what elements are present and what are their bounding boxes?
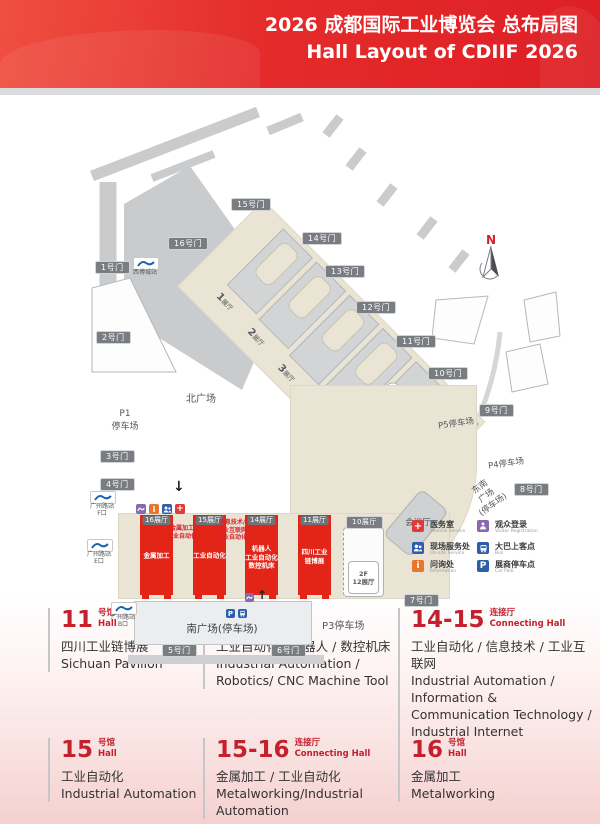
hall-10-tag: 10展厅 [346,516,383,529]
gate-4: 4号门 [100,478,135,491]
gate-3: 3号门 [100,450,135,463]
gate-11: 11号门 [396,335,436,348]
gate-6: 6号门 [271,644,306,657]
gate-14: 14号门 [302,232,342,245]
onsite-service-icon [162,504,172,514]
visitor-registration-icon [477,520,489,532]
gate-13: 13号门 [325,265,365,278]
connecting-hall-16-15: 金属加工 工业自动化 [167,525,197,540]
gate-16: 16号门 [168,237,208,250]
hall-14-tag: 14展厅 [247,516,276,525]
gate-9: 9号门 [479,404,514,417]
bus-icon [477,542,489,554]
gate-5: 5号门 [162,644,197,657]
hall-11-tag: 11展厅 [300,516,329,525]
metro-station-xibocheng: 西博城站 [131,269,159,276]
venue-map: 1展厅 2展厅 3展厅 4展厅 5展厅 6展厅 2F 7展厅 2F 8展厅 会议… [0,95,600,595]
compass-icon [478,245,504,281]
metro-station-exit-e: 广州路站 E口 [85,551,113,565]
gate-7: 7号门 [404,594,439,607]
gate-1: 1号门 [95,261,130,274]
p1-parking-label: P1 停车场 [103,408,147,434]
header-divider [0,88,600,95]
hall-11: 11展厅 四川工业 链博展 [298,515,331,595]
gate-15: 15号门 [231,198,271,211]
information-icon: i [412,560,424,572]
info-block-connecting-14-15: 14-15连接厅 Connecting Hall 工业自动化 / 信息技术 / … [398,608,593,740]
parking-icon: P [477,560,489,572]
gate-10: 10号门 [428,367,468,380]
gate-12: 12号门 [356,301,396,314]
medical-icon: + [412,520,424,532]
hall-14: 14展厅 机器人 工业自动化 数控机床 [245,515,278,595]
metro-station-exit-f: 广州路站 F口 [88,503,116,517]
bus-icon [238,609,247,618]
arrow-down-icon: ↓ [173,479,185,495]
header-banner: 2026 成都国际工业博览会 总布局图 Hall Layout of CDIIF… [0,0,600,88]
gate-8: 8号门 [514,483,549,496]
hall-layout-poster: 2026 成都国际工业博览会 总布局图 Hall Layout of CDIIF… [0,0,600,824]
gate-2: 2号门 [96,331,131,344]
parking-icon: P [226,609,235,618]
metro-station-exit-b: 广州路站 B口 [109,614,137,628]
p3-parking-label: P3停车场 [322,617,364,632]
page-title: 2026 成都国际工业博览会 总布局图 Hall Layout of CDIIF… [18,12,578,66]
metro-icon [245,593,254,602]
onsite-service-icon [412,542,424,554]
medical-icon: + [175,504,185,514]
info-block-connecting-15-16: 15-16连接厅 Connecting Hall 金属加工 / 工业自动化Met… [203,738,396,819]
information-icon: i [149,504,159,514]
hall-16-tag: 16展厅 [142,516,171,525]
hall-12-2f: 2F 12展厅 [348,561,379,594]
south-plaza-label: 南广场(停车场) [152,621,292,636]
north-plaza-label: 北广场 [186,390,216,405]
info-block-hall-15: 15号馆 Hall 工业自动化Industrial Automation [48,738,201,802]
metro-icon [136,504,146,514]
arrow-up-icon: ↑ [257,588,267,602]
connecting-hall-15-14: 信息技术/ 工业互联网 工业自动化 [217,519,247,542]
info-block-hall-16: 16号馆 Hall 金属加工Metalworking [398,738,593,802]
